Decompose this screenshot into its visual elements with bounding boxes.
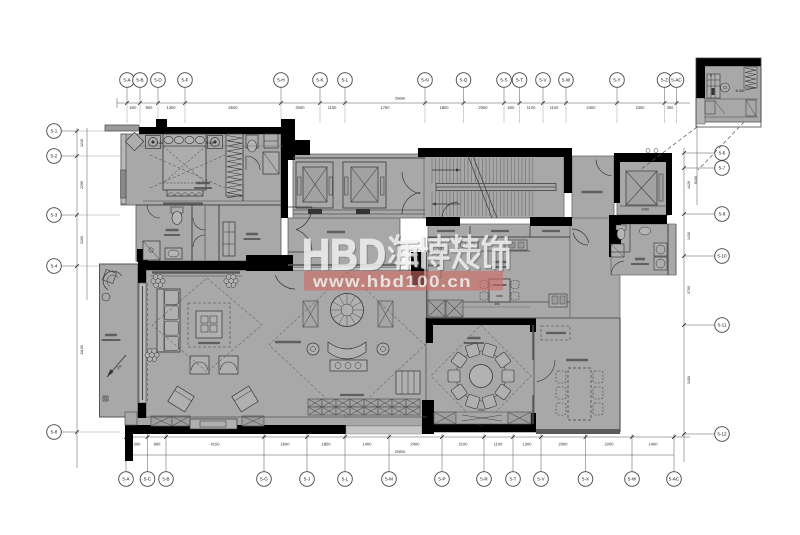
svg-text:5-11: 5-11 bbox=[718, 323, 727, 328]
svg-text:5-N: 5-N bbox=[421, 78, 428, 83]
svg-text:5-10: 5-10 bbox=[717, 254, 727, 259]
svg-text:900: 900 bbox=[146, 105, 153, 110]
svg-text:1800: 1800 bbox=[440, 105, 450, 110]
svg-text:1400: 1400 bbox=[649, 441, 659, 446]
svg-text:900: 900 bbox=[154, 441, 161, 446]
svg-text:1100: 1100 bbox=[550, 105, 559, 110]
svg-text:5-P: 5-P bbox=[438, 477, 445, 482]
svg-text:5-T: 5-T bbox=[510, 477, 517, 482]
svg-text:5-B: 5-B bbox=[162, 477, 169, 482]
svg-text:5-C: 5-C bbox=[144, 477, 152, 482]
svg-text:5-Z: 5-Z bbox=[661, 78, 668, 83]
svg-text:600: 600 bbox=[508, 105, 515, 110]
svg-text:300: 300 bbox=[494, 302, 499, 306]
svg-text:1150: 1150 bbox=[328, 105, 337, 110]
svg-text:2400: 2400 bbox=[587, 105, 597, 110]
svg-text:1100: 1100 bbox=[527, 105, 536, 110]
svg-text:5-8: 5-8 bbox=[51, 430, 58, 435]
svg-text:300: 300 bbox=[134, 441, 141, 446]
svg-text:5-W: 5-W bbox=[628, 477, 637, 482]
svg-text:www.hbd100.cn: www.hbd100.cn bbox=[312, 273, 472, 291]
svg-text:5-3: 5-3 bbox=[51, 213, 58, 218]
svg-text:1300: 1300 bbox=[523, 441, 533, 446]
svg-text:3400: 3400 bbox=[687, 376, 691, 384]
svg-text:5-AC: 5-AC bbox=[671, 78, 682, 83]
svg-text:1750: 1750 bbox=[381, 105, 391, 110]
svg-text:1850: 1850 bbox=[322, 441, 332, 446]
svg-text:5-6: 5-6 bbox=[719, 151, 726, 156]
svg-text:5-A: 5-A bbox=[123, 78, 131, 83]
svg-text:5-G: 5-G bbox=[260, 477, 268, 482]
svg-text:600: 600 bbox=[130, 105, 137, 110]
svg-text:F: F bbox=[710, 74, 712, 78]
svg-text:5-S: 5-S bbox=[500, 78, 507, 83]
svg-text:25650: 25650 bbox=[395, 97, 405, 101]
svg-text:5-9: 5-9 bbox=[719, 212, 726, 217]
svg-text:5-Q: 5-Q bbox=[460, 78, 468, 83]
svg-text:B 200: B 200 bbox=[736, 89, 745, 93]
svg-text:6500: 6500 bbox=[229, 105, 239, 110]
svg-text:5-B: 5-B bbox=[136, 78, 143, 83]
svg-text:5-2: 5-2 bbox=[51, 154, 58, 159]
svg-text:5-X: 5-X bbox=[582, 477, 589, 482]
svg-text:5-7: 5-7 bbox=[719, 166, 726, 171]
svg-text:9100: 9100 bbox=[206, 141, 214, 145]
svg-text:25650: 25650 bbox=[395, 450, 406, 454]
svg-text:1300: 1300 bbox=[167, 105, 177, 110]
svg-text:5-R: 5-R bbox=[480, 477, 488, 482]
svg-text:3100: 3100 bbox=[157, 141, 164, 145]
svg-text:5-M: 5-M bbox=[385, 477, 393, 482]
svg-text:3700: 3700 bbox=[687, 286, 691, 294]
svg-text:4420: 4420 bbox=[687, 181, 691, 189]
svg-text:5-AC: 5-AC bbox=[669, 477, 680, 482]
svg-text:1430: 1430 bbox=[687, 232, 691, 240]
svg-text:5-J: 5-J bbox=[304, 477, 310, 482]
svg-text:5-V: 5-V bbox=[539, 78, 547, 83]
svg-text:5-W: 5-W bbox=[562, 78, 571, 83]
svg-text:5-T: 5-T bbox=[516, 78, 523, 83]
svg-text:5-D: 5-D bbox=[154, 78, 162, 83]
svg-text:1100: 1100 bbox=[494, 441, 503, 446]
svg-text:1400: 1400 bbox=[363, 441, 373, 446]
svg-text:6200: 6200 bbox=[496, 294, 503, 298]
svg-text:5-12: 5-12 bbox=[717, 432, 727, 437]
svg-text:3160: 3160 bbox=[80, 236, 84, 244]
svg-text:5-1: 5-1 bbox=[51, 129, 58, 134]
svg-text:2000: 2000 bbox=[559, 441, 569, 446]
svg-text:9100: 9100 bbox=[694, 176, 698, 184]
svg-text:11100: 11100 bbox=[80, 345, 84, 354]
svg-text:4150: 4150 bbox=[211, 441, 221, 446]
svg-text:5-H: 5-H bbox=[277, 78, 284, 83]
svg-text:2200: 2200 bbox=[605, 441, 615, 446]
svg-text:1240: 1240 bbox=[80, 139, 84, 147]
svg-text:5-L: 5-L bbox=[342, 78, 349, 83]
svg-text:5-A: 5-A bbox=[122, 477, 130, 482]
svg-text:3000: 3000 bbox=[296, 105, 306, 110]
svg-text:5-F: 5-F bbox=[182, 78, 189, 83]
svg-text:350: 350 bbox=[667, 105, 674, 110]
svg-text:5-4: 5-4 bbox=[51, 264, 58, 269]
svg-text:2400: 2400 bbox=[641, 208, 649, 212]
svg-text:5-K: 5-K bbox=[316, 78, 324, 83]
svg-text:5-Y: 5-Y bbox=[613, 78, 620, 83]
svg-text:2000: 2000 bbox=[479, 105, 489, 110]
svg-text:1560: 1560 bbox=[477, 408, 484, 412]
svg-text:2300: 2300 bbox=[636, 105, 646, 110]
svg-text:2100: 2100 bbox=[459, 441, 469, 446]
svg-text:2400: 2400 bbox=[411, 441, 421, 446]
svg-text:2290: 2290 bbox=[80, 181, 84, 189]
svg-text:5-V: 5-V bbox=[537, 477, 545, 482]
svg-text:2600: 2600 bbox=[281, 441, 291, 446]
svg-text:5-L: 5-L bbox=[342, 477, 349, 482]
